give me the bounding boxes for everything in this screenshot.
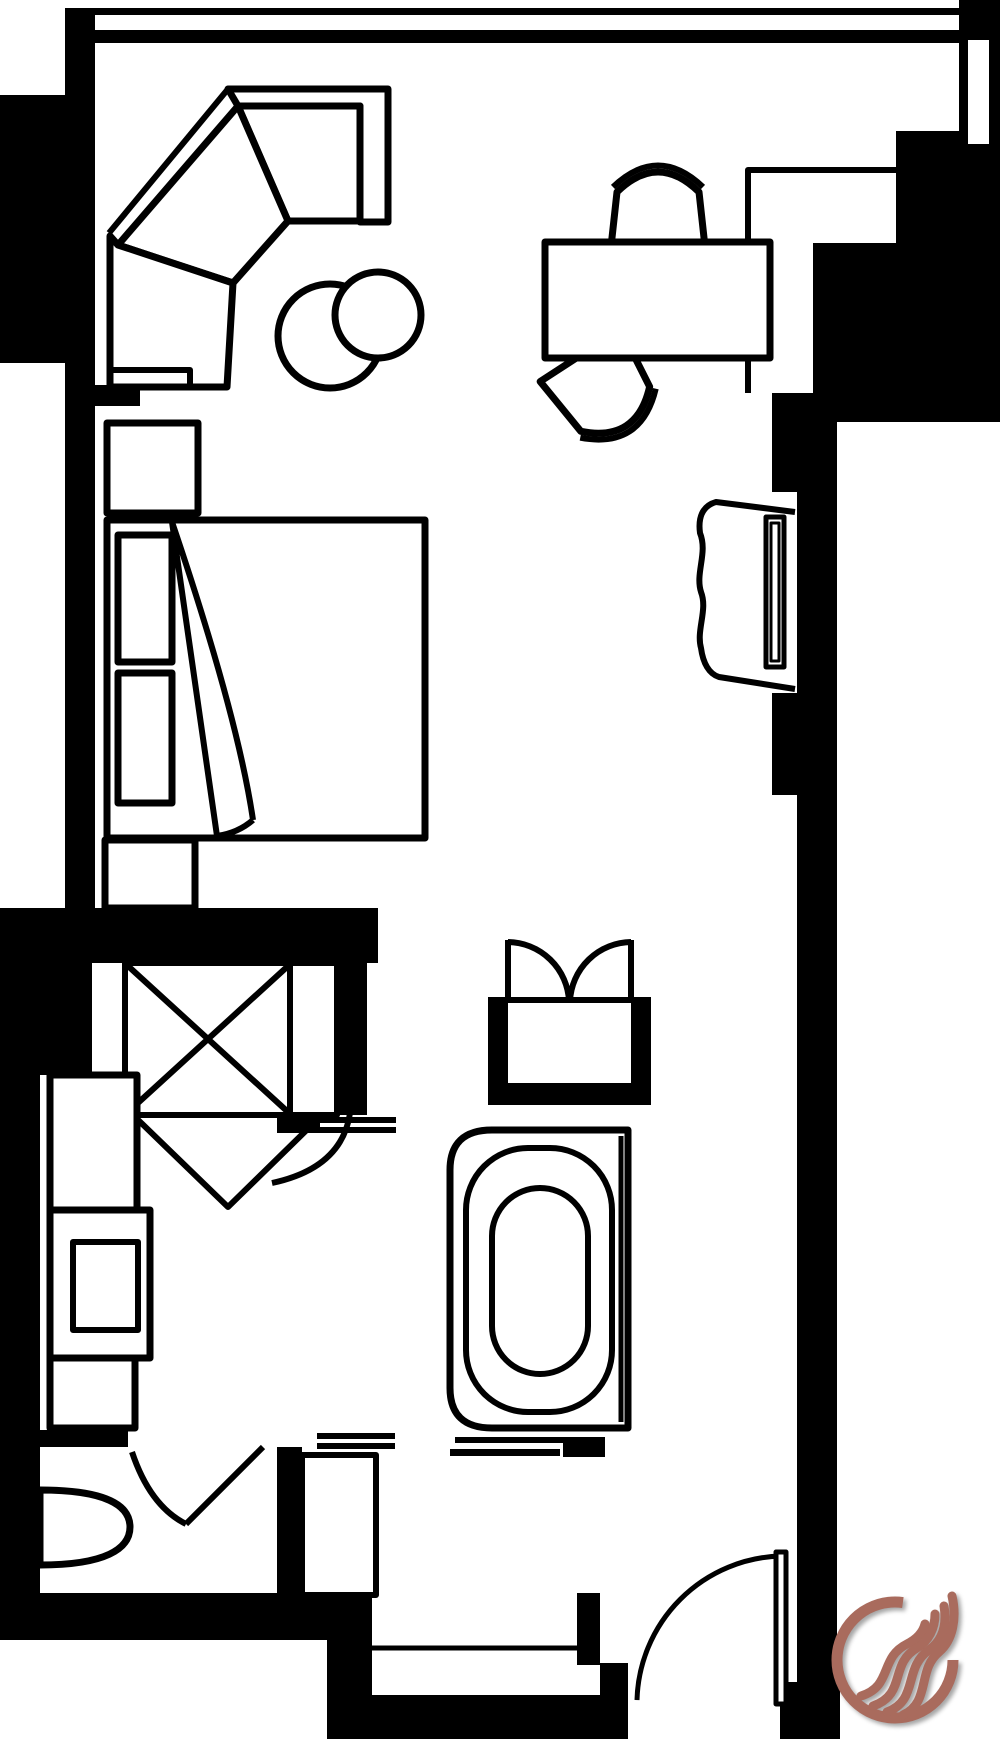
wall-right-upper-mass [896, 131, 1000, 422]
stool [335, 272, 421, 358]
wall-jamb [277, 1447, 302, 1597]
nightstand-upper [107, 423, 198, 513]
floor-plan: Hotel guest room floor plan [0, 0, 1000, 1739]
pocket-door-track-tub [450, 1437, 605, 1457]
wall-bottom-left-column [327, 1640, 372, 1739]
closet [125, 963, 337, 1115]
toilet [40, 1490, 130, 1565]
wall-band-above-closet [92, 908, 378, 963]
shower-stall-walls [488, 997, 651, 1105]
wall-right-slab [797, 422, 837, 1705]
shower-doors [508, 940, 631, 1001]
wall-bottom-band [372, 1695, 628, 1739]
wall-left-upper-mass [0, 95, 95, 363]
vanity [50, 1075, 150, 1428]
nightstand-lower [105, 840, 195, 908]
bathtub [450, 1130, 628, 1428]
wall-toiletroom-top [40, 1430, 128, 1447]
window-slot [968, 40, 989, 144]
toilet-door [132, 1447, 263, 1524]
wall-closet-right-column [337, 963, 367, 1115]
flame-logo [837, 1596, 954, 1718]
wall-entry-jamb [577, 1593, 600, 1665]
wall-alcove-block [813, 243, 896, 395]
entry-door [637, 1552, 786, 1704]
wall-entry-threshold [780, 1682, 840, 1739]
wall-left-top-column [65, 8, 95, 95]
bath-door-leaf [302, 1455, 376, 1595]
tv [766, 517, 784, 667]
bed [107, 520, 425, 838]
pocket-door-track-toilet [317, 1433, 395, 1449]
desk [545, 242, 770, 358]
wall-recess-bottom-fill [772, 693, 797, 795]
wall-left-lower-strip [0, 1075, 40, 1640]
floor-plan-drawing: Hotel guest room floor plan [0, 0, 1000, 1739]
wall-left-mid-mass [0, 908, 92, 1075]
wall-left-strip [65, 363, 95, 908]
wall-recess-top-fill [772, 422, 797, 492]
wall-bottom-left-band [0, 1593, 372, 1640]
window-wall [65, 8, 959, 43]
wall-band-mid-right [772, 393, 1000, 422]
wall-entry-step [600, 1663, 628, 1708]
